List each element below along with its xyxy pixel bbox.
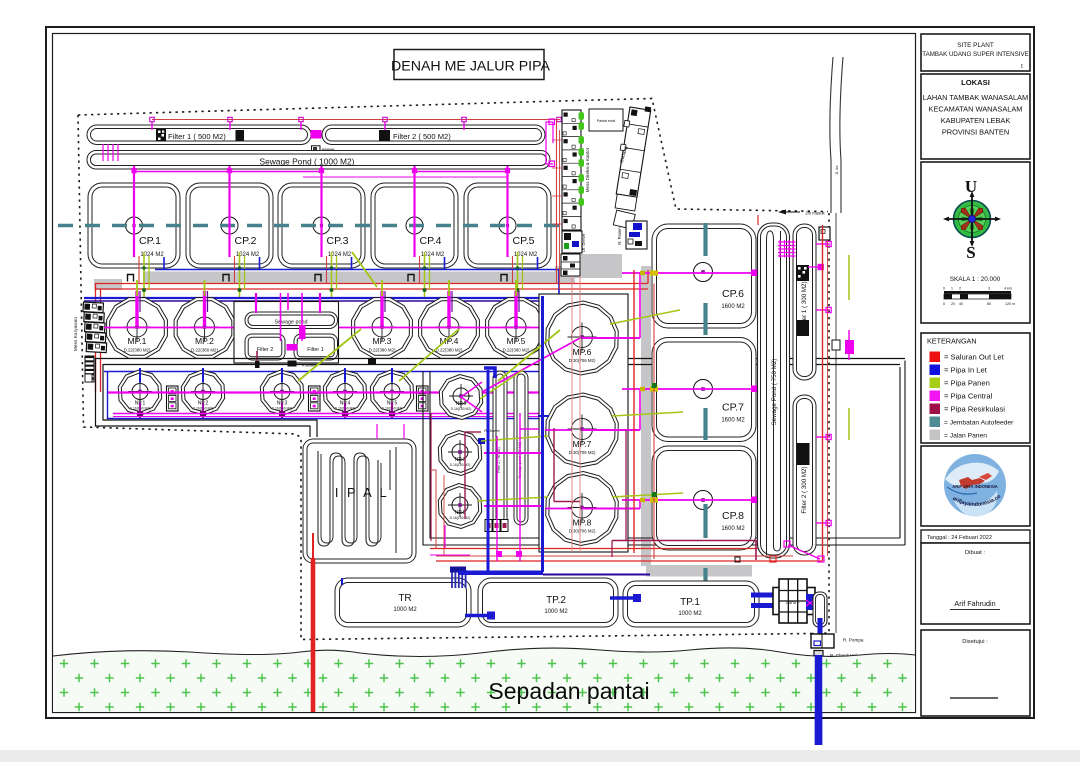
svg-text:0: 0	[943, 302, 945, 306]
svg-text:Sewage Pond ( 750 M2): Sewage Pond ( 750 M2)	[771, 359, 778, 426]
svg-text:3: 3	[988, 287, 990, 291]
svg-text:CP.6: CP.6	[722, 288, 744, 300]
svg-text:Filter 1 ( 300 M2): Filter 1 ( 300 M2)	[801, 281, 808, 328]
svg-text:Jl. ks: Jl. ks	[834, 165, 839, 174]
svg-text:Filter 2 ( 500 M2): Filter 2 ( 500 M2)	[393, 132, 451, 141]
svg-text:2: 2	[959, 287, 961, 291]
svg-text:D.22(380 M2): D.22(380 M2)	[369, 348, 396, 353]
svg-text:120 m: 120 m	[1005, 302, 1015, 306]
svg-text:1600 M2: 1600 M2	[721, 304, 745, 310]
svg-text:D.16(150 M2): D.16(150 M2)	[450, 516, 471, 520]
svg-text:40: 40	[959, 302, 963, 306]
svg-text:Filter 2: Filter 2	[257, 347, 273, 353]
svg-text:= Pipa Panen: = Pipa Panen	[944, 379, 990, 388]
svg-text:CP.7: CP.7	[722, 402, 744, 414]
svg-text:KETERANGAN: KETERANGAN	[927, 337, 977, 346]
svg-text:20: 20	[951, 302, 955, 306]
svg-text:D.22(380 M2): D.22(380 M2)	[124, 348, 151, 353]
svg-text:Disetujui :: Disetujui :	[962, 639, 988, 645]
svg-text:ARIF JAYA INDONESIA: ARIF JAYA INDONESIA	[952, 484, 998, 489]
svg-text:Tanggal : 24 Febuari 2022: Tanggal : 24 Febuari 2022	[927, 535, 992, 541]
svg-text:TR: TR	[398, 593, 411, 604]
svg-text:1: 1	[951, 287, 953, 291]
svg-text:LR. Genset: LR. Genset	[582, 234, 586, 252]
svg-text:MP.1: MP.1	[128, 336, 147, 346]
svg-text:TP.1: TP.1	[680, 597, 700, 608]
svg-text:KABUPATEN LEBAK: KABUPATEN LEBAK	[941, 116, 1011, 125]
svg-text:KECAMATAN WANASALAM: KECAMATAN WANASALAM	[929, 105, 1023, 114]
svg-text:1000 M2: 1000 M2	[393, 607, 417, 613]
svg-text:U: U	[965, 177, 977, 196]
svg-text:PROVINSI BANTEN: PROVINSI BANTEN	[942, 128, 1009, 137]
svg-text:D.30(706 M2): D.30(706 M2)	[569, 529, 596, 534]
svg-text:D.16(150 M2): D.16(150 M2)	[450, 463, 471, 467]
svg-text:TP.2: TP.2	[546, 595, 566, 606]
svg-text:1600 M2: 1600 M2	[721, 526, 745, 532]
svg-text:= Pipa Central: = Pipa Central	[944, 392, 993, 401]
svg-text:Mess Karyawan: Mess Karyawan	[73, 317, 79, 351]
svg-text:1000 M2: 1000 M2	[678, 611, 702, 617]
svg-text:CP.4: CP.4	[420, 235, 442, 247]
svg-text:CP.2: CP.2	[235, 235, 257, 247]
svg-text:SKALA 1 : 20.000: SKALA 1 : 20.000	[950, 276, 1001, 283]
svg-text:= Jalan Panen: = Jalan Panen	[944, 433, 987, 440]
svg-text:= Pipa In Let: = Pipa In Let	[944, 366, 988, 375]
svg-text:1600 M2: 1600 M2	[721, 418, 745, 424]
svg-text:MP.2: MP.2	[195, 336, 214, 346]
svg-text:= Pipa Resirkulasi: = Pipa Resirkulasi	[944, 405, 1005, 414]
svg-text:R. Panen: R. Panen	[617, 227, 622, 245]
svg-text:MP.8: MP.8	[573, 518, 592, 528]
svg-text:Sepadan pantai: Sepadan pantai	[488, 678, 649, 704]
svg-text:DENAH ME JALUR PIPA: DENAH ME JALUR PIPA	[391, 59, 551, 75]
svg-text:D.16(150 M2): D.16(150 M2)	[451, 407, 472, 411]
svg-text:= Jembatan Autofeeder: = Jembatan Autofeeder	[944, 420, 1014, 427]
svg-text:0: 0	[943, 287, 945, 291]
svg-text:D.22(380 M2): D.22(380 M2)	[436, 348, 463, 353]
svg-text:LOKASI: LOKASI	[961, 78, 990, 87]
svg-text:I P A L: I P A L	[335, 485, 389, 500]
svg-text:CP.8: CP.8	[722, 510, 744, 522]
svg-text:Mess Direksi & Kantor: Mess Direksi & Kantor	[585, 147, 590, 192]
svg-text:MP.3: MP.3	[373, 336, 392, 346]
svg-text:TAMBAK UDANG SUPER INTENSIVE: TAMBAK UDANG SUPER INTENSIVE	[922, 51, 1028, 58]
svg-text:4 km: 4 km	[1004, 287, 1012, 291]
svg-text:MP.6: MP.6	[573, 347, 592, 357]
svg-text:MP.7: MP.7	[573, 439, 592, 449]
svg-text:Sand F: Sand F	[786, 600, 801, 605]
svg-text:Pantai exist: Pantai exist	[597, 119, 616, 123]
svg-text:Filter 1 ( 500 M2): Filter 1 ( 500 M2)	[168, 132, 226, 141]
svg-text:1000 M2: 1000 M2	[544, 609, 568, 615]
svg-text:D.22(380 M2): D.22(380 M2)	[191, 348, 218, 353]
svg-text:Dibuat :: Dibuat :	[965, 550, 985, 556]
svg-text:S: S	[966, 243, 975, 262]
svg-text:CP.3: CP.3	[327, 235, 349, 247]
svg-text:LAHAN TAMBAK WANASALAM: LAHAN TAMBAK WANASALAM	[923, 93, 1028, 102]
svg-text:R. Pompa: R. Pompa	[843, 638, 864, 643]
svg-text:CP.5: CP.5	[513, 235, 535, 247]
svg-text:Filter 1: Filter 1	[307, 347, 323, 353]
svg-text:MP.5: MP.5	[507, 336, 526, 346]
svg-text:D.30(706 M2): D.30(706 M2)	[569, 450, 596, 455]
svg-text:Filter 2 ( 300 M2): Filter 2 ( 300 M2)	[801, 466, 808, 513]
svg-text:Sewage Pond ( 1000 M2): Sewage Pond ( 1000 M2)	[260, 157, 355, 167]
svg-text:2m masuk: 2m masuk	[805, 211, 825, 216]
svg-text:CP.1: CP.1	[139, 235, 161, 247]
svg-text:Arif Fahrudin: Arif Fahrudin	[954, 599, 995, 608]
svg-text:D.30(706 M2): D.30(706 M2)	[569, 358, 596, 363]
svg-text:SITE PLANT: SITE PLANT	[957, 42, 994, 49]
svg-text:80: 80	[987, 302, 991, 306]
svg-text:D.22(380 M2): D.22(380 M2)	[503, 348, 530, 353]
svg-text:= Saluran Out Let: = Saluran Out Let	[944, 353, 1005, 362]
